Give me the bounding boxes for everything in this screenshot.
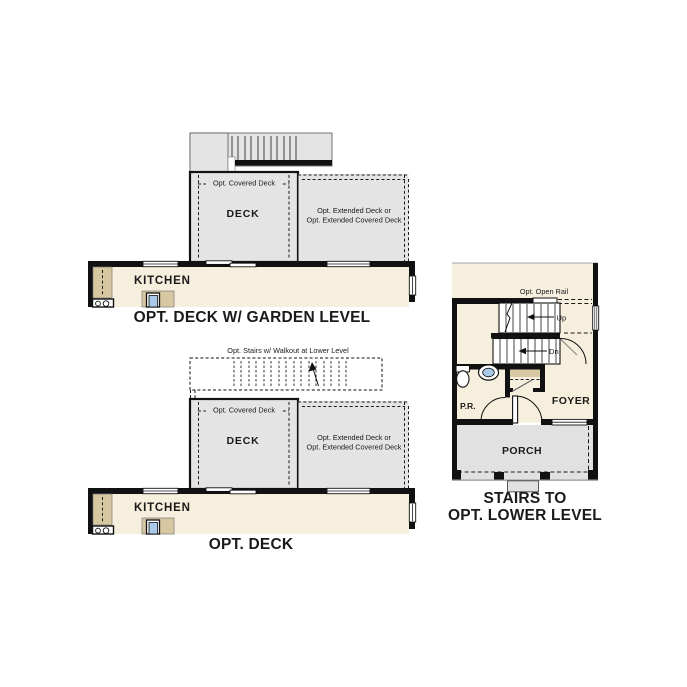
toilet-icon — [456, 366, 470, 388]
window — [143, 261, 178, 266]
kitchen-floor — [93, 494, 409, 534]
porch-label: PORCH — [502, 445, 542, 457]
stair-landing — [190, 133, 228, 173]
window — [552, 419, 587, 425]
diagram-opt-deck-garden-level: Opt. Covered Deck DECK Opt. Extended Dec… — [88, 133, 416, 326]
up-label: Up — [557, 314, 567, 323]
front-wall-right — [587, 419, 598, 425]
diagram-title-garden-level: OPT. DECK W/ GARDEN LEVEL — [134, 309, 371, 326]
porch-post — [540, 472, 550, 480]
stair-mid-wall — [491, 333, 560, 339]
porch-post — [494, 472, 504, 480]
covered-deck-label: Opt. Covered Deck — [213, 179, 275, 188]
pr-door-jamb — [505, 388, 510, 398]
window — [593, 306, 599, 330]
window — [327, 261, 370, 266]
extended-deck-label-line2: Opt. Extended Covered Deck — [307, 216, 402, 225]
porch-post — [588, 470, 598, 480]
kitchen-floor — [93, 267, 409, 307]
opt-stairs-dashed-treads — [234, 361, 346, 387]
stairs-deck-connector-dashes — [191, 390, 196, 399]
kitchen-island — [142, 291, 174, 307]
kitchen-label: KITCHEN — [134, 275, 191, 287]
opt-stairs-note: Opt. Stairs w/ Walkout at Lower Level — [227, 346, 349, 355]
stair-return-gap — [228, 157, 235, 173]
kitchen: KITCHEN — [88, 261, 416, 307]
front-wall-mid — [541, 419, 552, 425]
kitchen: KITCHEN — [88, 488, 416, 534]
stair-rail-wall — [235, 160, 332, 166]
covered-deck-label: Opt. Covered Deck — [213, 406, 275, 415]
floorplan-drawing: Opt. Covered Deck DECK Opt. Extended Dec… — [0, 0, 687, 687]
extended-deck-label-line1: Opt. Extended Deck or — [317, 433, 391, 442]
closet-shelf — [510, 370, 540, 378]
plan-cut-line — [452, 263, 598, 264]
extended-deck-label-line1: Opt. Extended Deck or — [317, 206, 391, 215]
diagram-title-lower-level-line2: OPT. LOWER LEVEL — [448, 507, 602, 524]
window — [327, 488, 370, 493]
diagram-title-lower-level-line1: STAIRS TO — [483, 490, 566, 507]
porch-post — [452, 470, 461, 480]
stairs-up-run: Up — [499, 303, 566, 333]
deck-label: DECK — [227, 208, 260, 220]
range-icon — [93, 526, 114, 534]
window — [409, 503, 415, 522]
extended-deck-label-line2: Opt. Extended Covered Deck — [307, 443, 402, 452]
deck-label: DECK — [227, 435, 260, 447]
window — [143, 488, 178, 493]
foyer-label: FOYER — [552, 395, 590, 407]
diagram-opt-deck: Opt. Stairs w/ Walkout at Lower Level Op… — [88, 346, 416, 553]
powder-room-label: P.R. — [460, 401, 476, 411]
open-rail-label: Opt. Open Rail — [520, 287, 569, 296]
deck-stairs — [190, 133, 332, 173]
diagram-stairs-lower-level: Opt. Open Rail Up Dn — [448, 263, 602, 525]
stairs-direction-arrow — [309, 362, 319, 386]
kitchen-island — [142, 518, 174, 534]
front-wall-left — [452, 419, 513, 425]
door-leaf — [513, 396, 518, 423]
diagram-title-opt-deck: OPT. DECK — [209, 536, 294, 553]
stairs-down-run: Dn — [493, 339, 560, 365]
floorplan-sheet: Opt. Covered Deck DECK Opt. Extended Dec… — [0, 0, 687, 687]
sink-icon — [479, 365, 499, 380]
range-icon — [93, 299, 114, 307]
window — [409, 276, 415, 295]
left-wall — [452, 298, 457, 480]
down-label: Dn — [549, 347, 559, 356]
right-wall — [593, 263, 598, 480]
kitchen-label: KITCHEN — [134, 502, 191, 514]
